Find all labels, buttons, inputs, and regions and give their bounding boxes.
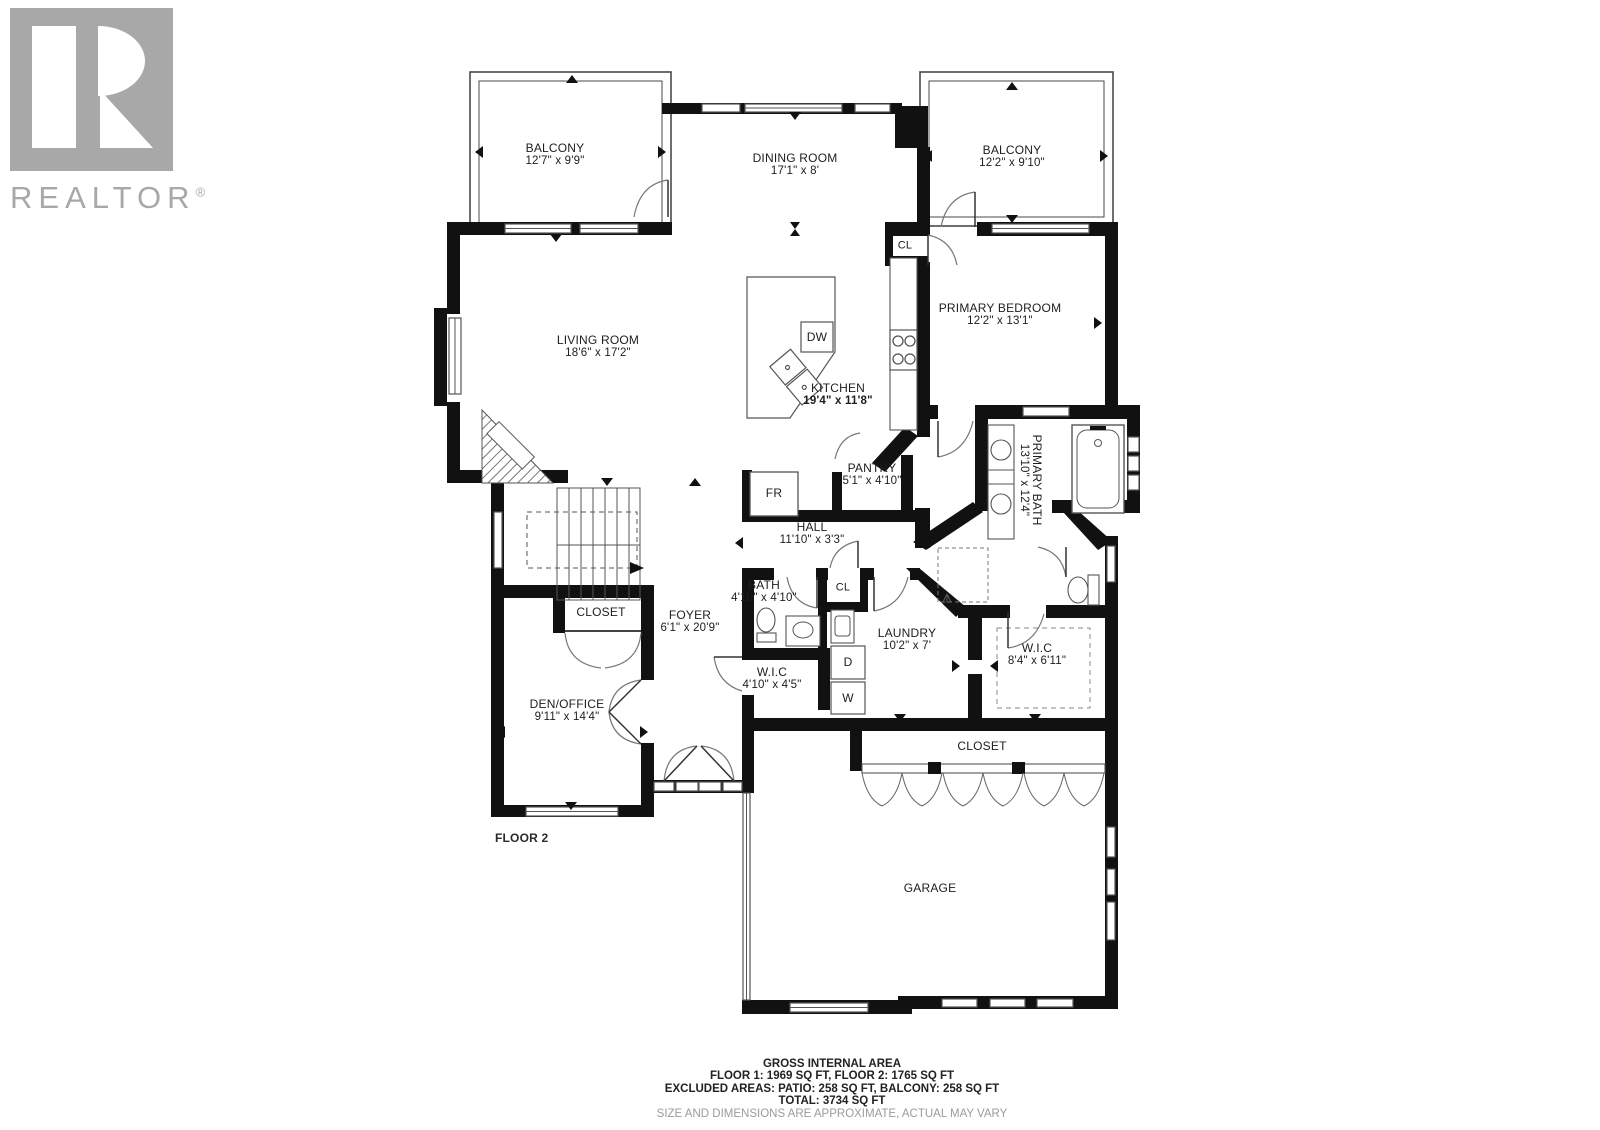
room-label-primary-bedroom: PRIMARY BEDROOM12'2" x 13'1" (939, 301, 1062, 329)
room-label-bath: BATH4'10" x 4'10" (731, 578, 797, 606)
appliance-label-washer: W (842, 691, 854, 705)
room-label-pantry: PANTRY5'1" x 4'10" (842, 461, 901, 489)
room-label-foyer: FOYER6'1" x 20'9" (660, 608, 719, 636)
appliance-label-dryer: D (844, 655, 853, 669)
appliance-label-dishwasher: DW (807, 330, 827, 344)
summary-floor-areas: FLOOR 1: 1969 SQ FT, FLOOR 2: 1765 SQ FT (622, 1070, 1042, 1082)
summary-excluded-areas: EXCLUDED AREAS: PATIO: 258 SQ FT, BALCON… (622, 1083, 1042, 1095)
summary-disclaimer: SIZE AND DIMENSIONS ARE APPROXIMATE, ACT… (622, 1108, 1042, 1120)
room-label-living-room: LIVING ROOM18'6" x 17'2" (557, 333, 639, 361)
room-label-garage: GARAGE (904, 881, 957, 895)
room-label-laundry: LAUNDRY10'2" x 7' (878, 626, 937, 654)
room-label-den-office: DEN/OFFICE9'11" x 14'4" (530, 697, 605, 725)
area-summary: GROSS INTERNAL AREA FLOOR 1: 1969 SQ FT,… (622, 1058, 1042, 1120)
closet-label-den: CLOSET (576, 605, 625, 619)
closet-label-garage: CLOSET (957, 739, 1006, 753)
room-label-wic-small: W.I.C4'10" x 4'5" (742, 665, 801, 693)
room-label-wic-large: W.I.C8'4" x 6'11" (1008, 641, 1066, 669)
room-label-balcony-2: BALCONY12'2" x 9'10" (979, 143, 1045, 171)
floor-plan-page: REALTOR® (0, 0, 1600, 1130)
summary-title: GROSS INTERNAL AREA (622, 1058, 1042, 1070)
appliance-label-fridge: FR (766, 486, 782, 500)
closet-label-bedroom-cl: CL (898, 240, 912, 253)
closet-label-hall-cl: CL (836, 582, 850, 595)
room-label-kitchen: KITCHEN19'4" x 11'8" (803, 381, 873, 409)
room-label-hall: HALL11'10" x 3'3" (780, 520, 845, 548)
floor-label: FLOOR 2 (495, 831, 548, 845)
room-label-balcony-1: BALCONY12'7" x 9'9" (525, 141, 584, 169)
summary-total: TOTAL: 3734 SQ FT (622, 1095, 1042, 1107)
room-label-primary-bath: PRIMARY BATH13'10" x 12'4" (1016, 434, 1044, 525)
room-label-dining-room: DINING ROOM17'1" x 8' (753, 151, 838, 179)
